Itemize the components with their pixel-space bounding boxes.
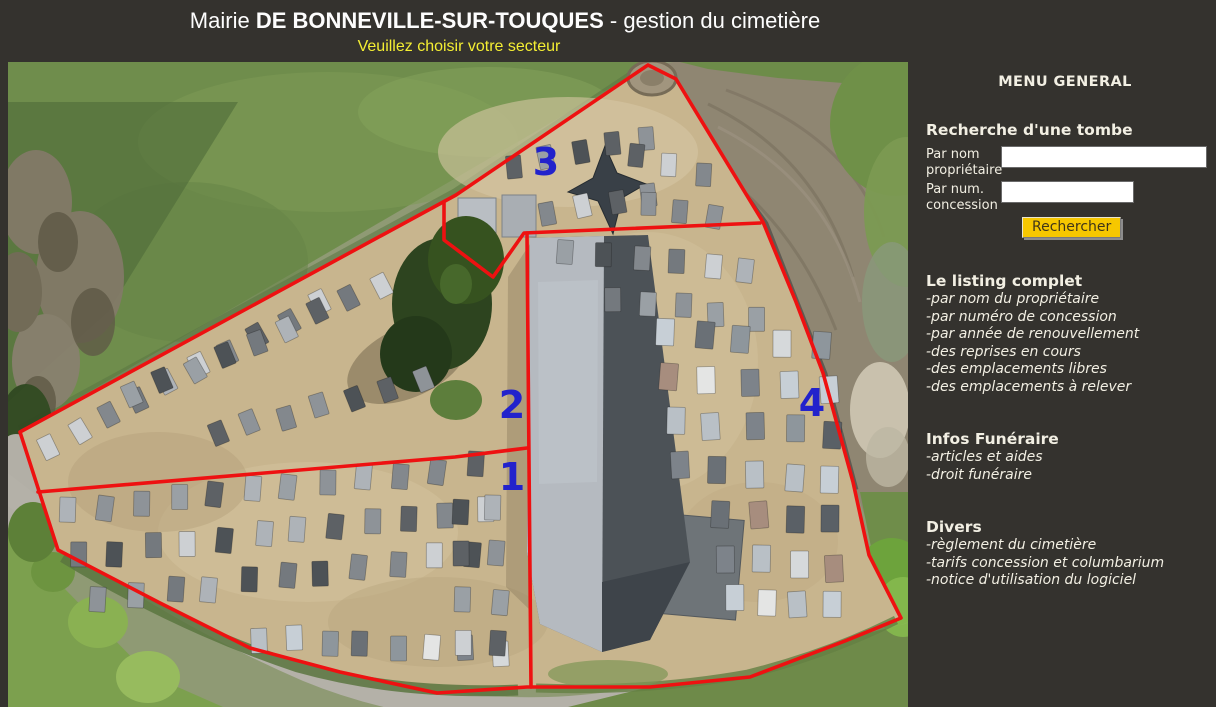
- gravestone: [695, 321, 715, 349]
- gravestone: [95, 495, 114, 522]
- gravestone: [749, 501, 769, 529]
- menu-panel: MENU GENERAL Recherche d'une tombe Par n…: [908, 62, 1216, 707]
- gravestone: [705, 254, 723, 279]
- gravestone: [179, 531, 195, 556]
- gravestone: [106, 542, 123, 568]
- concession-number-input[interactable]: [1001, 181, 1134, 203]
- menu-link[interactable]: -par nom du propriétaire: [926, 291, 1210, 309]
- gravestone: [634, 246, 651, 271]
- gravestone: [423, 634, 441, 660]
- gravestone: [205, 481, 224, 508]
- gravestone: [172, 485, 188, 510]
- title-prefix: Mairie: [190, 8, 256, 33]
- menu-sections: Le listing complet-par nom du propriétai…: [926, 273, 1210, 590]
- gravestone: [605, 288, 621, 312]
- gravestone: [279, 562, 297, 588]
- gravestone: [697, 366, 716, 393]
- gravestone: [312, 561, 329, 586]
- menu-section: Infos Funéraire-articles et aides-droit …: [926, 431, 1210, 484]
- menu-link[interactable]: -des reprises en cours: [926, 344, 1210, 362]
- gravestone: [134, 491, 150, 516]
- menu-link[interactable]: -règlement du cimetière: [926, 537, 1210, 555]
- gravestone: [726, 585, 744, 611]
- title-suffix: - gestion du cimetière: [604, 8, 820, 33]
- gravestone: [639, 292, 656, 317]
- gravestone: [823, 591, 841, 617]
- menu-link[interactable]: -des emplacements libres: [926, 361, 1210, 379]
- sector-label-2[interactable]: 2: [499, 383, 525, 427]
- gravestone: [675, 293, 692, 318]
- sector-label-3[interactable]: 3: [533, 140, 559, 184]
- gravestone: [730, 325, 750, 353]
- gravestone: [786, 506, 805, 533]
- gravestone: [244, 475, 262, 501]
- gravestone: [736, 258, 755, 284]
- gravestone: [400, 506, 417, 531]
- gravestone: [288, 516, 306, 542]
- gravestone: [391, 463, 409, 489]
- gravestone: [145, 532, 161, 557]
- menu-title: MENU GENERAL: [926, 74, 1204, 90]
- gravestone: [661, 153, 677, 177]
- gravestone: [820, 466, 839, 493]
- gravestone: [745, 461, 764, 488]
- gravestone: [487, 540, 505, 566]
- menu-section-heading: Divers: [926, 519, 1210, 535]
- gravestone: [215, 527, 233, 553]
- title-commune: DE BONNEVILLE-SUR-TOUQUES: [256, 8, 604, 33]
- gravestone: [351, 631, 368, 656]
- gravestone: [741, 369, 760, 396]
- search-button[interactable]: Rechercher: [1022, 217, 1121, 238]
- gravestone: [707, 456, 726, 483]
- menu-link[interactable]: -articles et aides: [926, 449, 1210, 467]
- concession-number-label: Par num. concession: [926, 181, 1001, 214]
- owner-name-label: Par nom propriétaire: [926, 146, 1001, 179]
- gravestone: [628, 143, 645, 167]
- gravestone: [667, 407, 686, 434]
- sector-label-1[interactable]: 1: [499, 455, 525, 499]
- gravestone: [780, 371, 799, 399]
- gravestone: [455, 630, 471, 655]
- page-title: Mairie DE BONNEVILLE-SUR-TOUQUES - gesti…: [0, 8, 1010, 34]
- menu-link[interactable]: -droit funéraire: [926, 467, 1210, 485]
- gravestone: [670, 451, 689, 479]
- menu-link[interactable]: -tarifs concession et columbarium: [926, 555, 1210, 573]
- gravestone: [595, 243, 611, 267]
- gravestone: [426, 543, 442, 568]
- gravestone: [89, 586, 106, 612]
- gravestone: [711, 501, 730, 529]
- gravestone: [716, 546, 734, 573]
- gravestone: [452, 499, 469, 525]
- gravestone: [322, 631, 339, 656]
- gravestone: [320, 470, 336, 495]
- gravestone: [787, 591, 807, 618]
- gravestone: [773, 330, 791, 357]
- menu-section: Divers-règlement du cimetière-tarifs con…: [926, 519, 1210, 590]
- gravestone: [427, 459, 446, 486]
- gravestone: [696, 163, 712, 187]
- gravestone: [391, 636, 407, 661]
- gravestone: [556, 239, 574, 264]
- gravestone: [824, 555, 843, 583]
- gravestone: [659, 363, 679, 391]
- gravestone: [656, 318, 675, 346]
- gravestone: [749, 307, 765, 331]
- page-subtitle: Veuillez choisir votre secteur: [0, 38, 918, 56]
- gravestone: [354, 464, 372, 490]
- menu-link[interactable]: -des emplacements à relever: [926, 379, 1210, 397]
- gravestone: [437, 503, 454, 528]
- gravestone: [256, 520, 274, 546]
- gravestone: [454, 587, 471, 612]
- gravestone: [701, 412, 721, 440]
- owner-name-input[interactable]: [1001, 146, 1207, 168]
- gravestone: [668, 249, 685, 274]
- menu-link[interactable]: -par numéro de concession: [926, 309, 1210, 327]
- gravestone: [489, 630, 507, 656]
- gravestone: [604, 131, 621, 155]
- gravestone: [349, 554, 368, 581]
- gravestone: [59, 497, 76, 522]
- gravestone: [641, 192, 656, 215]
- menu-section-heading: Infos Funéraire: [926, 431, 1210, 447]
- gravestone: [758, 590, 777, 617]
- sector-label-4[interactable]: 4: [799, 381, 825, 425]
- gravestone: [199, 577, 217, 603]
- chapel-roof: [502, 195, 536, 237]
- gravestone: [365, 509, 381, 534]
- gravestone: [286, 625, 303, 651]
- gravestone: [746, 412, 765, 439]
- gravestone: [491, 589, 509, 615]
- gravestone: [453, 541, 469, 566]
- gravestone: [390, 552, 407, 578]
- gravestone: [752, 545, 771, 572]
- menu-section: Le listing complet-par nom du propriétai…: [926, 273, 1210, 396]
- cemetery-aerial-map[interactable]: 3214: [8, 62, 908, 707]
- gravestone: [785, 464, 805, 492]
- menu-section-heading: Le listing complet: [926, 273, 1210, 289]
- gravestone: [241, 567, 258, 592]
- gravestone: [167, 576, 185, 602]
- gravestone: [671, 200, 688, 224]
- search-heading: Recherche d'une tombe: [926, 121, 1210, 139]
- gravestone: [326, 513, 345, 540]
- menu-link[interactable]: -notice d'utilisation du logiciel: [926, 572, 1210, 590]
- gravestone: [821, 505, 839, 532]
- gravestone: [791, 551, 809, 578]
- gravestone: [278, 474, 297, 501]
- menu-link[interactable]: -par année de renouvellement: [926, 326, 1210, 344]
